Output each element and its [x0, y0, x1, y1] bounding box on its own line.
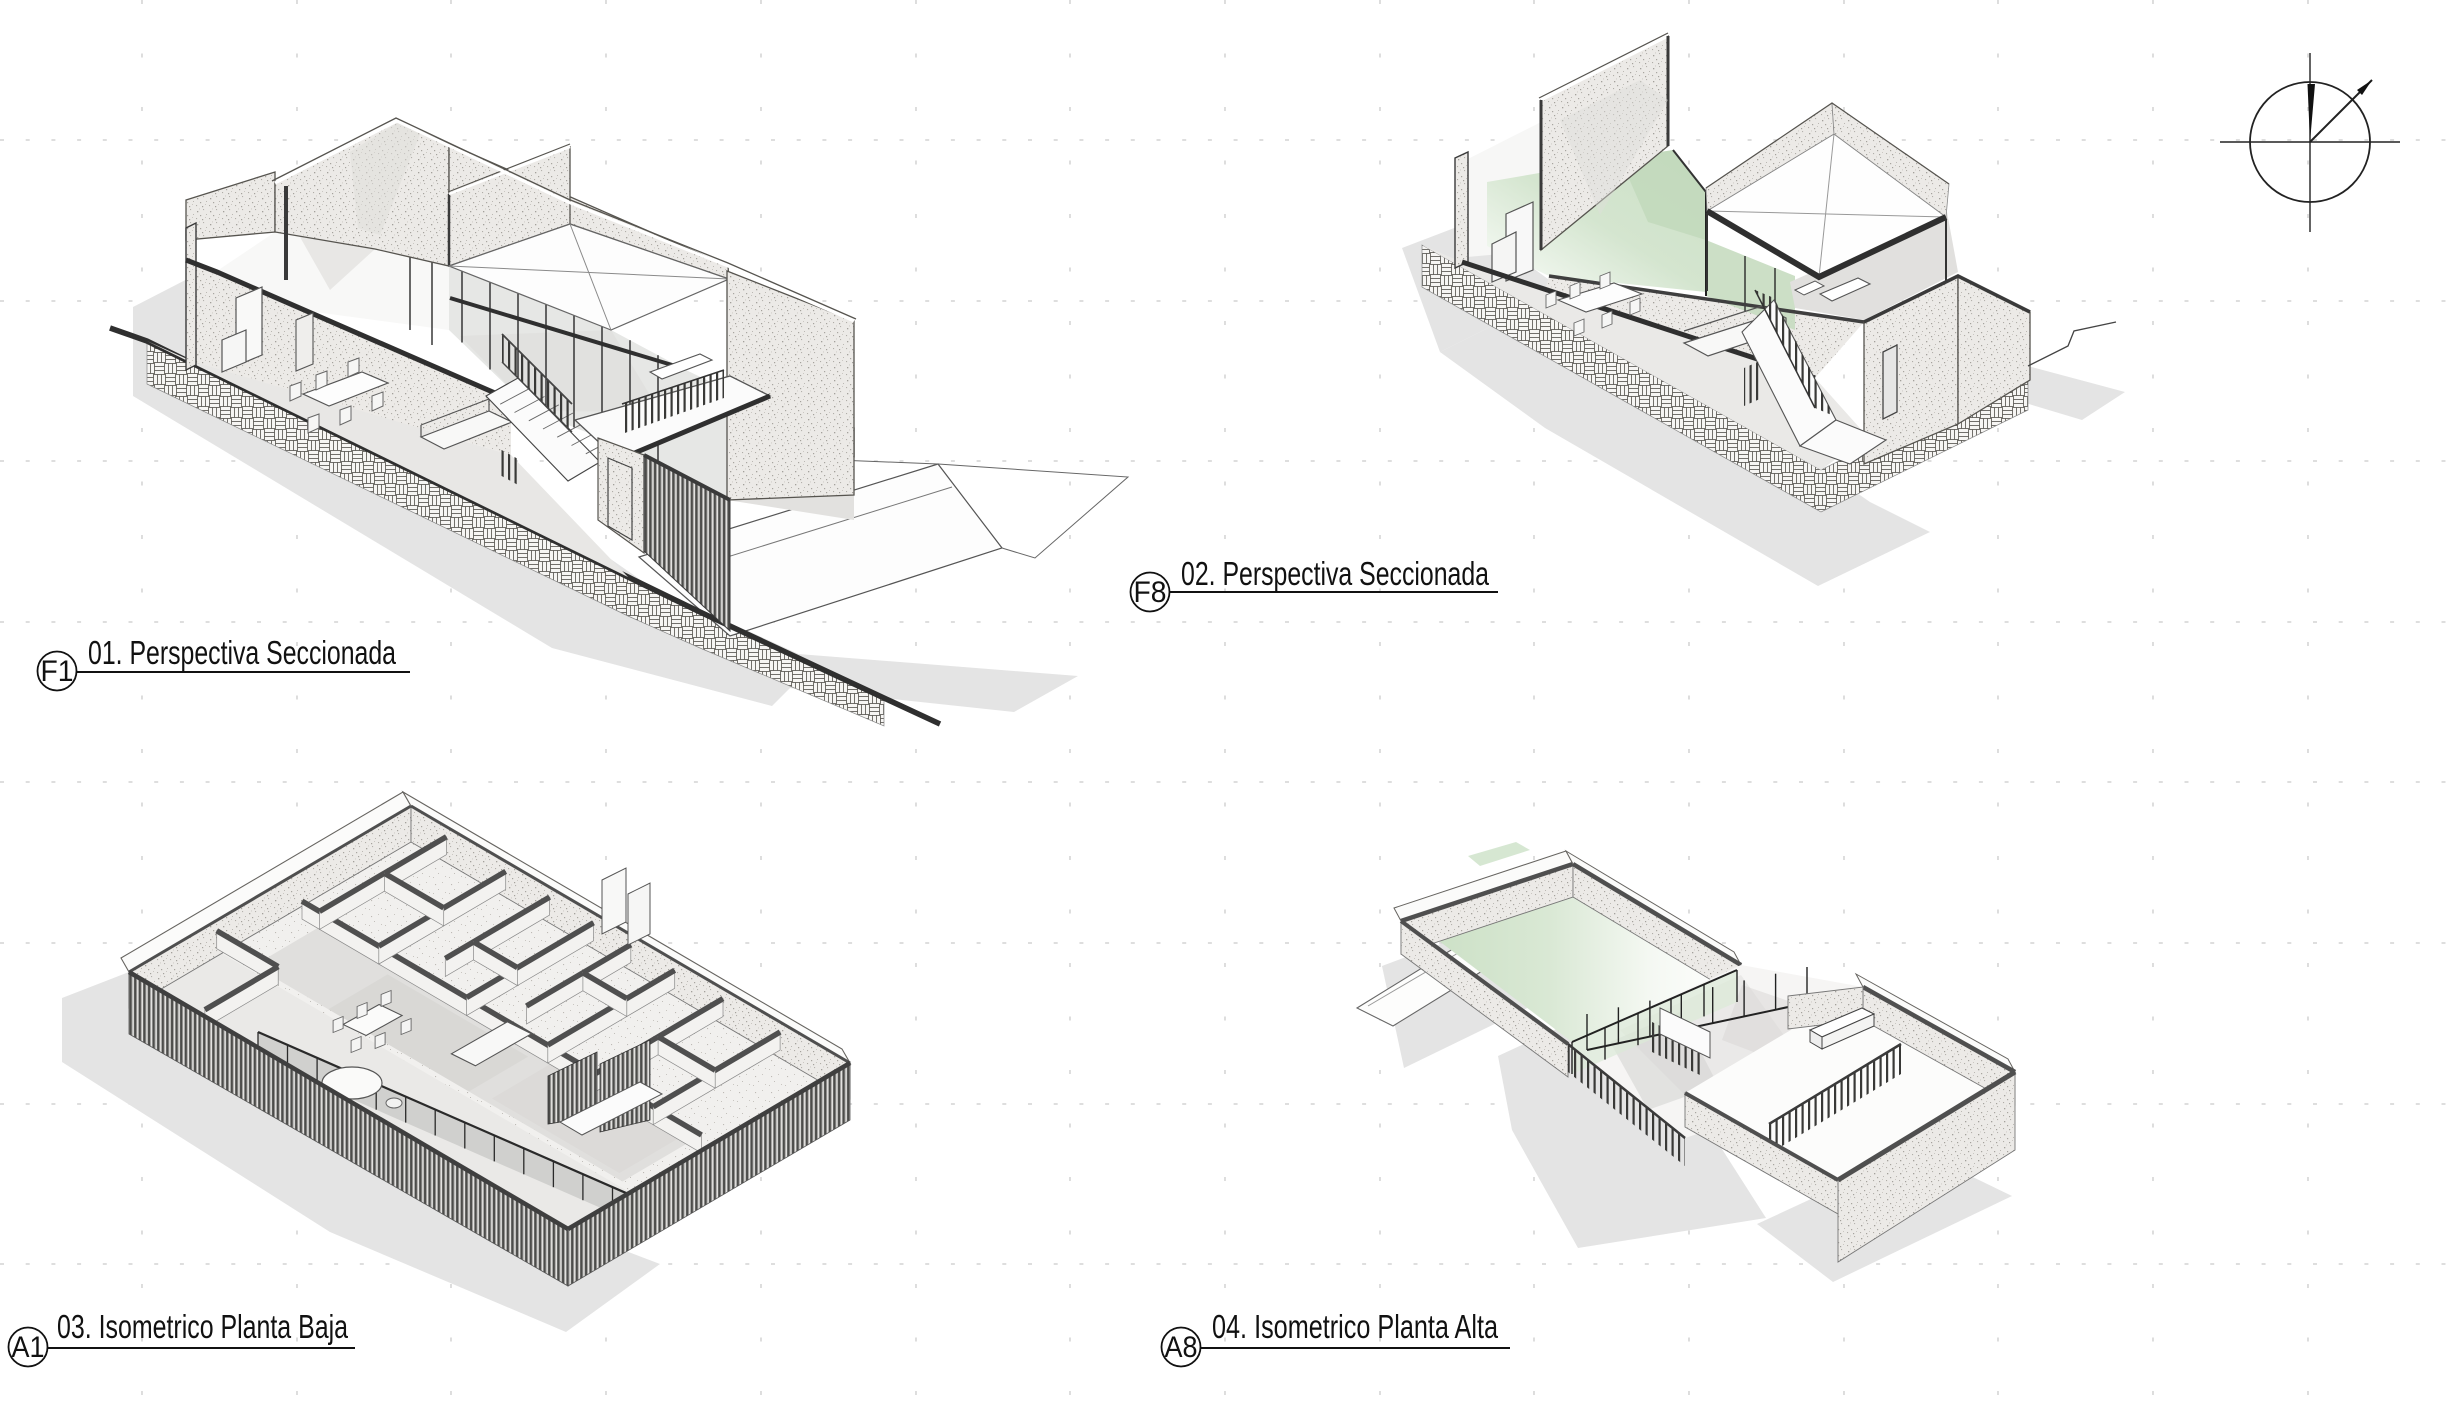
- svg-text:F8: F8: [1134, 576, 1167, 609]
- svg-text:04. Isometrico Planta Alta: 04. Isometrico Planta Alta: [1212, 1308, 1498, 1345]
- svg-text:01. Perspectiva Seccionada: 01. Perspectiva Seccionada: [88, 634, 396, 671]
- svg-text:F1: F1: [41, 655, 74, 688]
- svg-text:A1: A1: [12, 1331, 45, 1364]
- svg-text:A8: A8: [1165, 1331, 1198, 1364]
- svg-text:02. Perspectiva Seccionada: 02. Perspectiva Seccionada: [1181, 555, 1489, 592]
- svg-text:03. Isometrico Planta Baja: 03. Isometrico Planta Baja: [57, 1308, 348, 1345]
